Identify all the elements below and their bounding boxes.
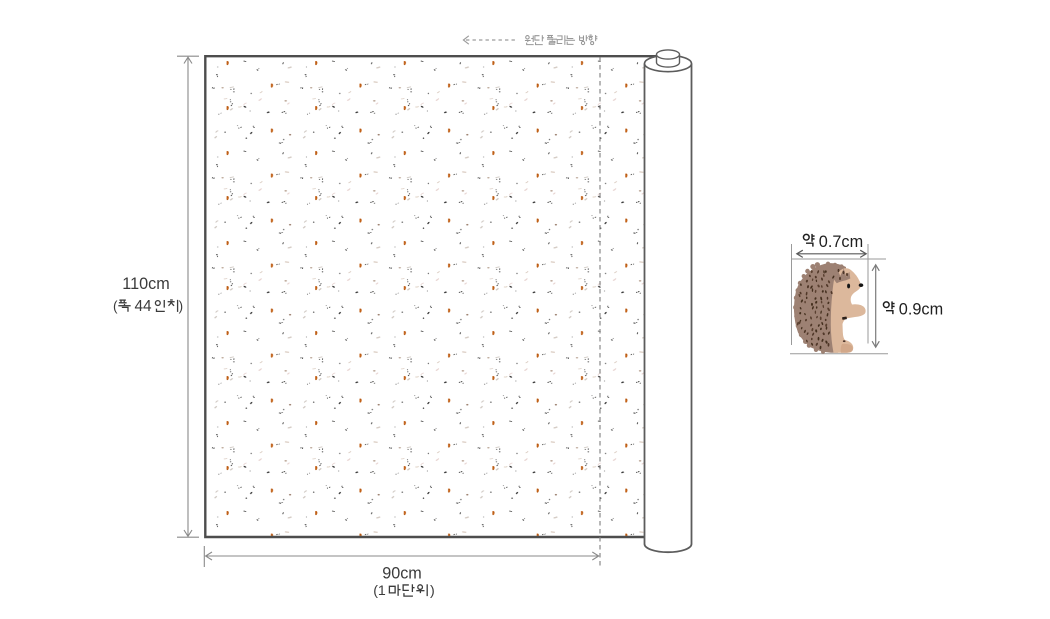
svg-text:): ) [179,299,184,314]
svg-text:90cm: 90cm [382,565,422,583]
svg-text:): ) [430,583,435,599]
svg-text:0.9cm: 0.9cm [899,301,943,319]
svg-text:(: ( [113,299,118,314]
svg-text:44: 44 [135,298,153,315]
svg-text:(1: (1 [373,583,386,599]
svg-text:0.7cm: 0.7cm [819,233,863,251]
svg-text:110cm: 110cm [122,275,169,293]
